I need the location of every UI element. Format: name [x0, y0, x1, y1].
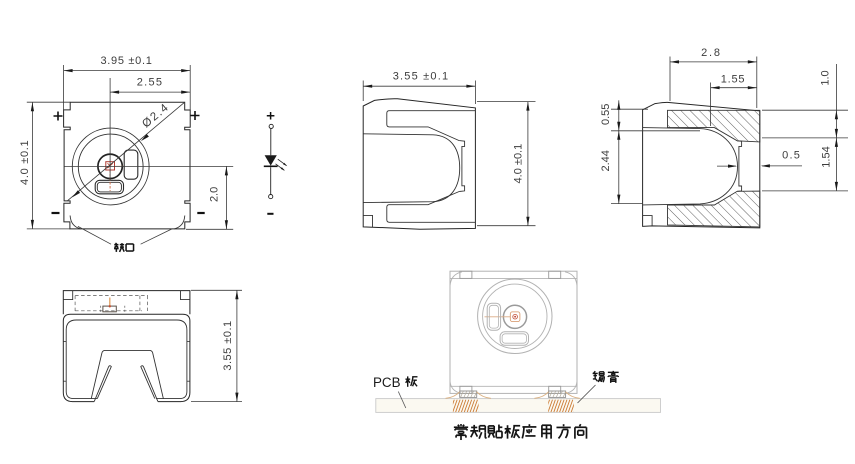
svg-text:1.54: 1.54: [821, 146, 833, 167]
svg-text:4.0 ±0.1: 4.0 ±0.1: [513, 144, 525, 184]
svg-text:0.5: 0.5: [782, 149, 801, 161]
svg-text:2.0: 2.0: [209, 187, 221, 202]
svg-text:1.0: 1.0: [820, 70, 832, 85]
svg-text:2.55: 2.55: [137, 77, 164, 89]
svg-text:3.95 ±0.1: 3.95 ±0.1: [100, 55, 152, 67]
svg-text:3.55 ±0.1: 3.55 ±0.1: [222, 320, 234, 370]
svg-text:1.55: 1.55: [721, 73, 746, 85]
svg-text:2.8: 2.8: [701, 47, 722, 59]
svg-text:3.55 ±0.1: 3.55 ±0.1: [393, 70, 450, 82]
svg-text:2.44: 2.44: [600, 150, 612, 171]
svg-text:4.0 ±0.1: 4.0 ±0.1: [19, 140, 31, 185]
svg-text:0.55: 0.55: [600, 104, 612, 125]
svg-text:PCB: PCB: [373, 375, 401, 390]
